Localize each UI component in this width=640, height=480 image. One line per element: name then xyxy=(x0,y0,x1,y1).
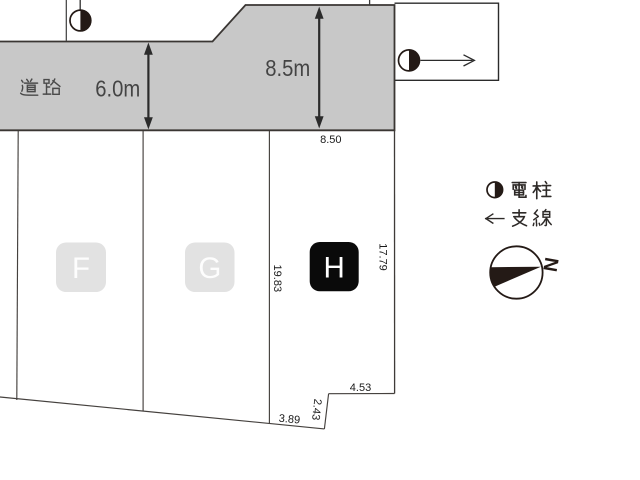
svg-text:G: G xyxy=(198,252,221,285)
svg-text:8.50: 8.50 xyxy=(320,134,341,146)
svg-text:19.83: 19.83 xyxy=(271,265,283,293)
svg-text:F: F xyxy=(72,252,90,285)
svg-text:6.0m: 6.0m xyxy=(95,75,140,101)
svg-text:3.89: 3.89 xyxy=(278,413,300,427)
svg-text:17.79: 17.79 xyxy=(377,243,389,271)
svg-text:H: H xyxy=(324,252,345,285)
svg-text:2.43: 2.43 xyxy=(309,398,323,421)
svg-text:8.5m: 8.5m xyxy=(265,55,310,81)
svg-text:4.53: 4.53 xyxy=(350,382,371,394)
